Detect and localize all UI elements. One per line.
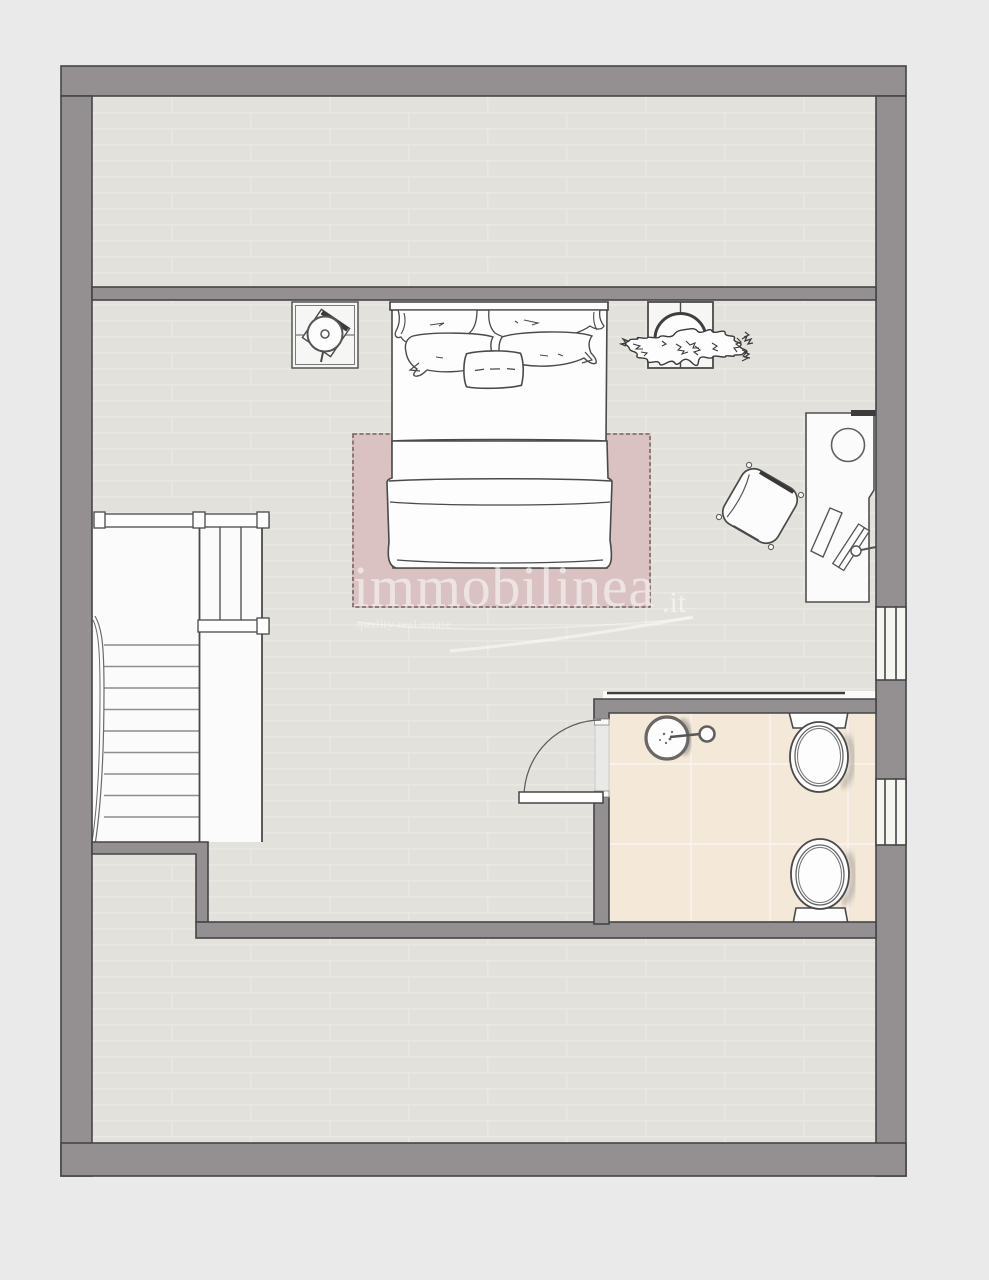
svg-text:immobilinea: immobilinea	[353, 554, 655, 619]
svg-text:.it: .it	[662, 586, 687, 619]
